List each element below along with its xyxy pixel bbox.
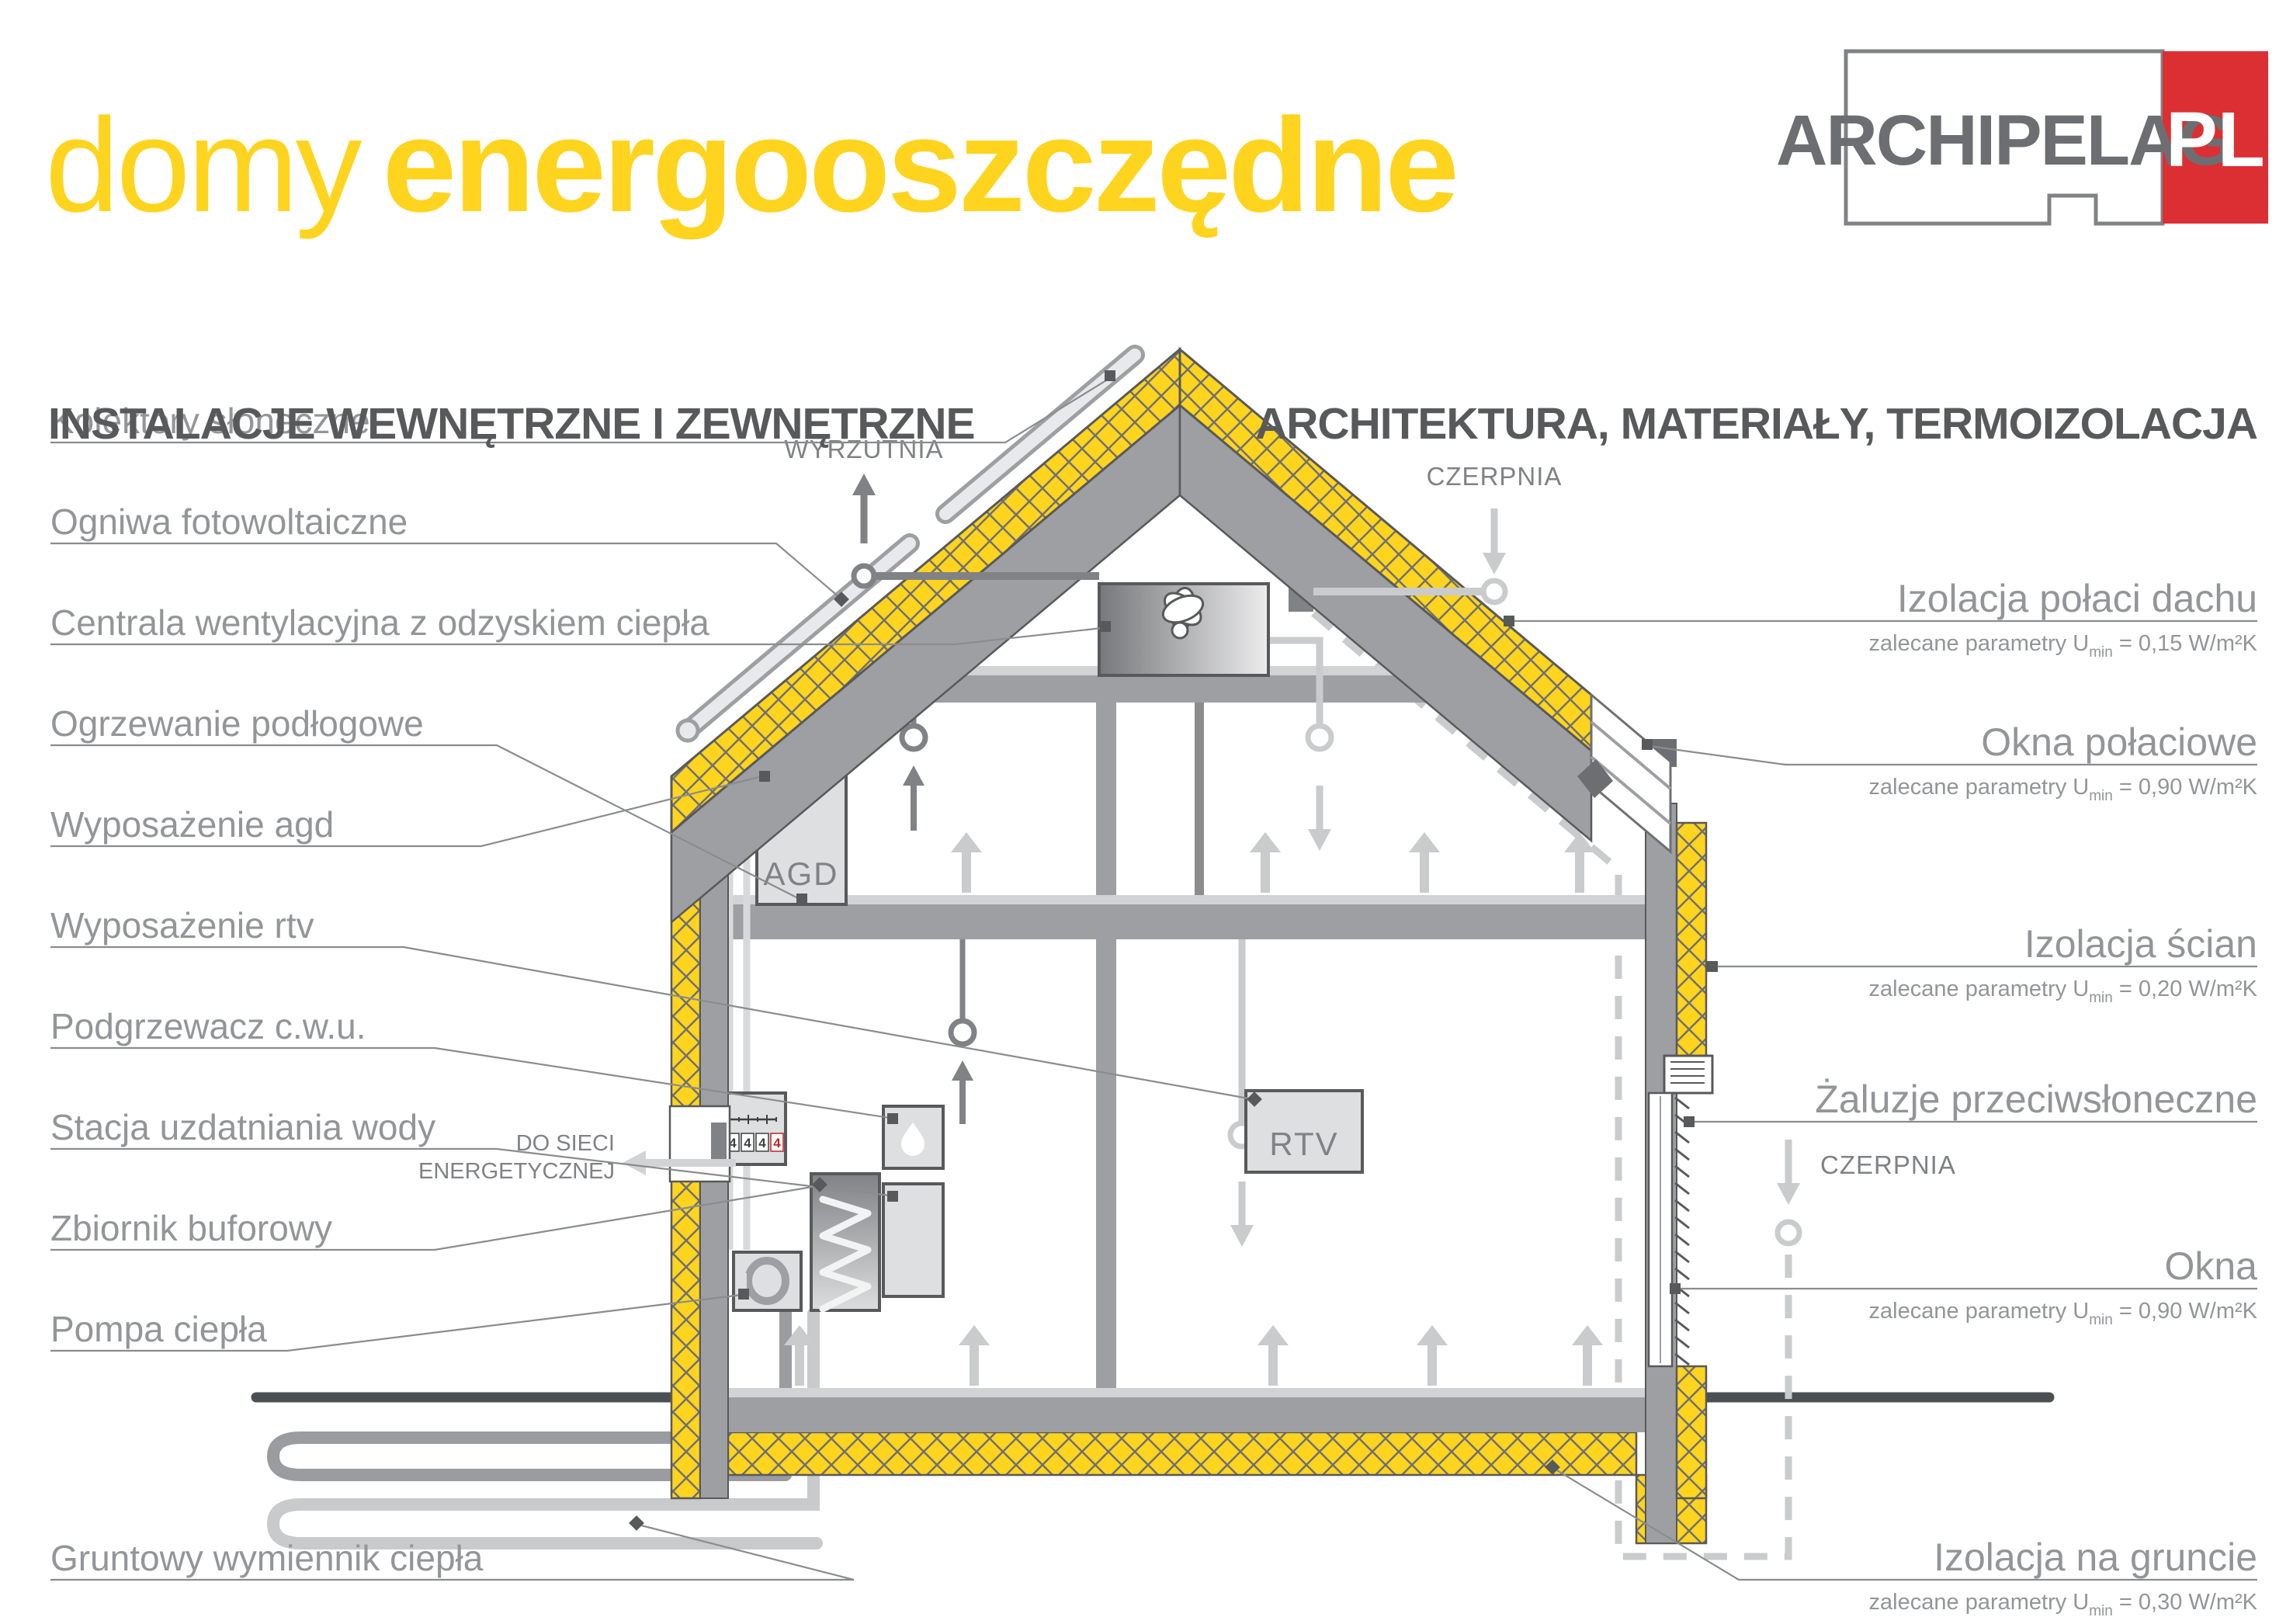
label-param: zalecane parametry Umin = 0,20 W/m²K xyxy=(1869,977,2258,1006)
intake-arrow-down-icon xyxy=(1777,1183,1800,1205)
ground-slab-heating-layer xyxy=(728,1388,1646,1397)
label-text: Izolacja połaci dachu xyxy=(1897,577,2257,620)
leader-marker xyxy=(1684,1116,1695,1127)
extract-diffuser-ground xyxy=(951,939,974,1124)
diffuser-ring-icon xyxy=(951,1021,974,1044)
leader-marker xyxy=(629,1515,644,1531)
ground-floor-arrows xyxy=(784,1325,1603,1386)
diffuser-ring-icon xyxy=(1308,726,1331,749)
leader-marker xyxy=(1105,370,1115,381)
air-arrow-up-icon xyxy=(952,1060,973,1081)
label-text: Podgrzewacz c.w.u. xyxy=(50,1006,366,1046)
label-param: zalecane parametry Umin = 0,90 W/m²K xyxy=(1869,775,2258,804)
rtv-label: RTV xyxy=(1269,1126,1338,1162)
meter-digit: 4 xyxy=(758,1136,766,1150)
upper-slab xyxy=(728,904,1646,939)
upper-floor-arrows xyxy=(776,832,1595,893)
collector-tube-end xyxy=(678,720,698,741)
logo-name: ARCHIPELAG xyxy=(1776,101,2232,180)
rtv-appliance: RTV xyxy=(1246,1091,1362,1172)
label-text: Okna połaciowe xyxy=(1981,720,2257,764)
label-text: Centrala wentylacyjna z odzyskiem ciepła xyxy=(50,602,709,643)
label-text: Wyposażenie agd xyxy=(50,804,334,845)
grid-arrow-left-icon xyxy=(623,1150,646,1175)
label-param: zalecane parametry Umin = 0,15 W/m²K xyxy=(1869,631,2258,661)
leader-marker xyxy=(887,1191,898,1202)
label-text: Gruntowy wymiennik ciepła xyxy=(50,1538,484,1578)
foundation xyxy=(728,1432,1706,1543)
heat-arrow-icon xyxy=(1409,832,1440,893)
logo-tld: PL xyxy=(2166,96,2265,183)
buffer-tank xyxy=(811,1174,879,1310)
grid-label-line2: ENERGETYCZNEJ xyxy=(418,1159,615,1184)
leader-marker xyxy=(1670,1283,1681,1294)
intake-ring-icon xyxy=(1483,581,1505,602)
ground-slab xyxy=(728,1397,1646,1432)
section-header-right: ARCHITEKTURA, MATERIAŁY, TERMOIZOLACJA xyxy=(1255,399,2257,449)
attic-slab xyxy=(912,675,1448,703)
leader-marker xyxy=(738,1289,749,1300)
leader-marker xyxy=(887,1113,898,1124)
heat-arrow-icon xyxy=(1417,1325,1448,1386)
intake-arrow-down-icon xyxy=(1483,553,1506,574)
czerpnia-roof-label: CZERPNIA xyxy=(1427,462,1563,491)
label-text: Izolacja na gruncie xyxy=(1934,1536,2257,1579)
label-text: Okna xyxy=(2164,1244,2257,1288)
exhaust-arrow-up-icon xyxy=(852,474,876,495)
label-okna-polaciowe: Okna połaciowe zalecane parametry Umin =… xyxy=(1642,720,2258,804)
leader-marker xyxy=(1707,961,1718,972)
label-text: Ogniwa fotowoltaiczne xyxy=(50,501,408,542)
meter-digit-red: 4 xyxy=(773,1136,781,1150)
label-pompa: Pompa ciepła xyxy=(50,1289,749,1351)
window-frame xyxy=(711,1123,727,1163)
right-wall-window xyxy=(1649,1093,1689,1366)
heat-arrow-icon xyxy=(1258,1325,1289,1386)
leader-marker xyxy=(1642,739,1653,750)
leader-marker xyxy=(759,771,770,782)
air-arrow-up-icon xyxy=(903,765,924,786)
foundation-insulation xyxy=(728,1432,1636,1475)
pump-ring-gap xyxy=(737,1273,747,1289)
heat-arrow-icon xyxy=(951,832,982,893)
section-header-left: INSTALACJE WEWNĘTRZNE I ZEWNĘTRZNE xyxy=(48,399,975,449)
ground-intake: CZERPNIA xyxy=(1777,1140,1956,1244)
air-arrow-down-icon xyxy=(1308,829,1331,851)
heat-arrow-icon xyxy=(1250,832,1281,893)
exhaust-ring-icon xyxy=(854,566,874,586)
leader-marker xyxy=(796,894,807,904)
heat-pump xyxy=(734,1252,801,1310)
heat-arrow-icon xyxy=(1572,1325,1603,1386)
right-wall-insulation-top xyxy=(1677,823,1706,1056)
label-text: Izolacja ścian xyxy=(2024,922,2257,966)
archipelag-logo: ARCHIPELAG PL xyxy=(1776,51,2268,224)
intake-ring-icon xyxy=(1778,1222,1799,1244)
label-izolacja-scian: Izolacja ścian zalecane parametry Umin =… xyxy=(1707,922,2258,1006)
heat-arrow-icon xyxy=(959,1325,990,1386)
leader-line xyxy=(50,543,840,598)
label-text: Pompa ciepła xyxy=(50,1309,267,1349)
label-ogniwa: Ogniwa fotowoltaiczne xyxy=(50,501,849,607)
blind-box xyxy=(1664,1056,1712,1093)
czerpnia-ground-label: CZERPNIA xyxy=(1820,1150,1956,1179)
label-text: Wyposażenie rtv xyxy=(50,905,314,946)
partition-ground-floor xyxy=(1096,939,1116,1388)
label-param: zalecane parametry Umin = 0,90 W/m²K xyxy=(1869,1299,2258,1328)
ventilation-unit xyxy=(1099,584,1268,675)
partition-upper-floor xyxy=(1096,703,1116,895)
label-zaluzje: Żaluzje przeciwsłoneczne xyxy=(1684,1077,2257,1127)
label-agd: Wyposażenie agd xyxy=(50,771,770,846)
label-okna: Okna zalecane parametry Umin = 0,90 W/m²… xyxy=(1670,1244,2258,1328)
label-param: zalecane parametry Umin = 0,30 W/m²K xyxy=(1869,1590,2258,1619)
leader-marker xyxy=(1100,621,1111,632)
page-title: domyenergooszczędne xyxy=(45,91,1456,240)
upper-slab-heating-layer xyxy=(728,895,1646,904)
label-text: Zbiornik buforowy xyxy=(50,1208,332,1248)
energy-efficient-house-infographic: 4 4 4 4 AGD xyxy=(0,0,2293,1624)
label-text: Stacja uzdatniania wody xyxy=(50,1107,435,1147)
meter-digit: 4 xyxy=(744,1136,751,1150)
label-izolacja-dachu: Izolacja połaci dachu zalecane parametry… xyxy=(1504,577,2258,661)
label-text: Żaluzje przeciwsłoneczne xyxy=(1815,1077,2257,1121)
leader-marker xyxy=(1504,616,1514,626)
air-arrow-down-icon xyxy=(1230,1225,1254,1247)
label-text: Ogrzewanie podłogowe xyxy=(50,703,424,744)
diffuser-ring-icon xyxy=(902,726,925,749)
right-wall-insulation-bottom xyxy=(1677,1366,1706,1498)
